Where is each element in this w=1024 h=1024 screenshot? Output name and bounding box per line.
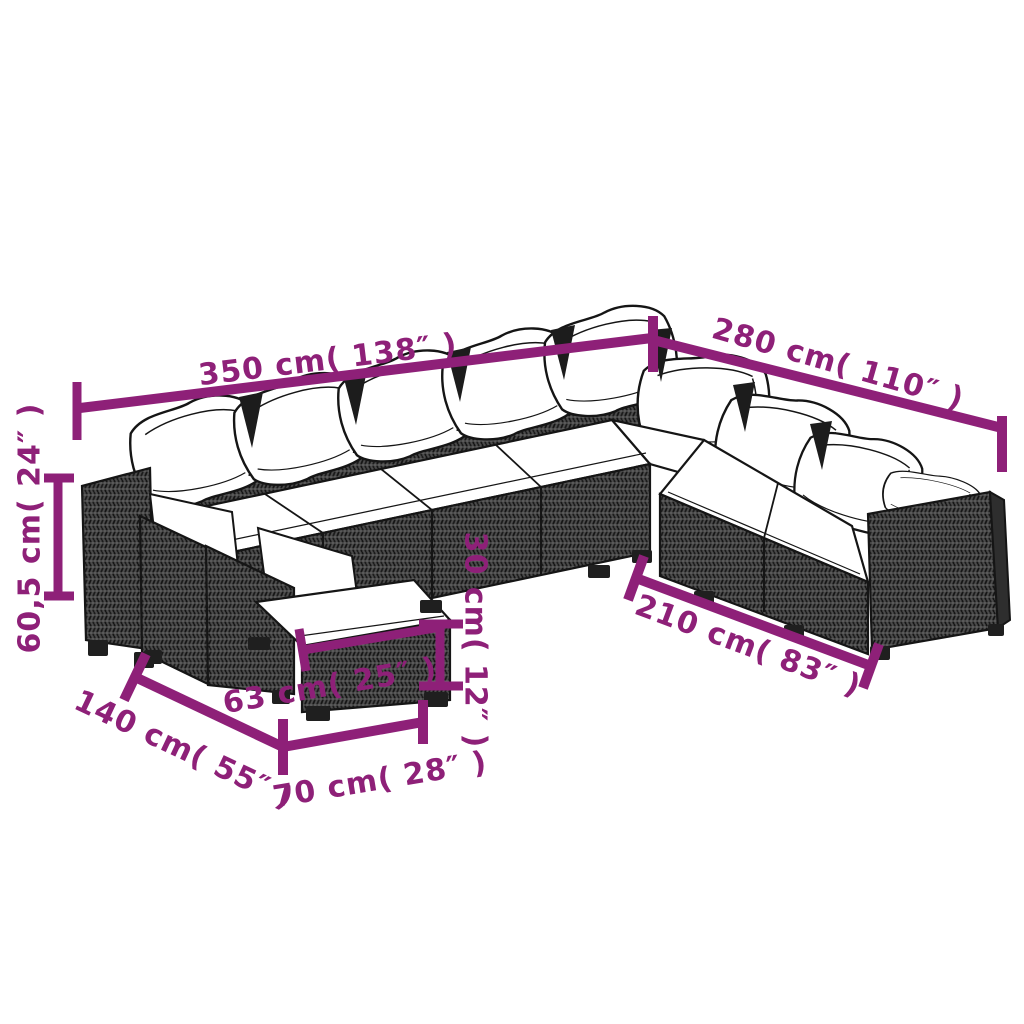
dim-60-5-label: 60,5 cm( 24″ )	[13, 403, 48, 654]
right-armrest	[868, 463, 1010, 650]
sofa-illustration	[0, 0, 1024, 1024]
dim-30-label: 30 cm( 12″ )	[458, 532, 493, 749]
dim-60-5-line	[44, 478, 74, 596]
product-dimension-diagram: 350 cm( 138″ ) 280 cm( 110″ ) 60,5 cm( 2…	[0, 0, 1024, 1024]
